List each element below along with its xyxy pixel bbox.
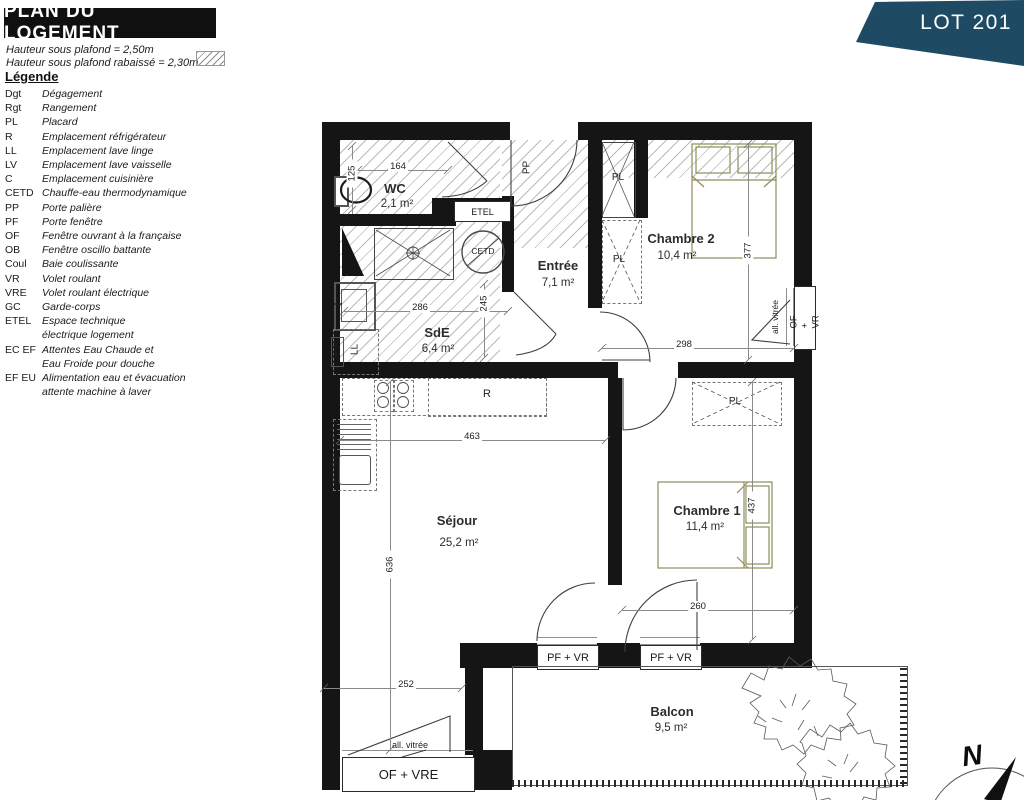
dim-sejour-height: 636 [385,551,396,579]
tag-pp: PP [522,150,533,186]
dim-kitchen-width: 463 [462,431,482,442]
allege-vitree-right: all. vitrée [770,294,780,340]
room-name-entree: Entrée [538,258,578,273]
tag-fridge: R [477,388,497,400]
tag-pl-closet: PL [606,172,630,183]
plan-linework [0,0,1024,800]
room-area-sejour: 25,2 m² [440,537,479,549]
room-area-wc: 2,1 m² [381,198,414,210]
room-area-entree: 7,1 m² [542,277,575,289]
dim-wc-width: 164 [388,161,408,172]
tree-scribble [822,754,858,778]
sejour-frenchdoor-arc [537,583,595,641]
burner-icon [378,383,389,394]
tag-washing-machine: LL [350,332,361,368]
tag-pl-bedroom1: PL [723,396,747,407]
shower-room-door-arc [516,334,556,355]
shower-drain-cross [406,246,420,260]
room-area-bedroom2: 10,4 m² [658,250,697,262]
dim-bedroom1-height: 437 [747,492,758,520]
burner-icon [378,397,389,408]
dim-sejour-width: 252 [396,679,416,690]
floor-plan-sheet: PLAN DU LOGEMENT Hauteur sous plafond = … [0,0,1024,800]
dimension-ticks [320,140,798,754]
dim-sde-width: 286 [410,302,430,313]
allege-vitree-bottom: all. vitrée [386,740,434,750]
dim-line [324,688,462,689]
burner-icon [398,397,409,408]
burner-icon [398,383,409,394]
tag-pl-bedroom2: PL [607,254,631,265]
room-area-balcon: 9,5 m² [655,722,688,734]
tree-scribble [742,657,856,754]
bed-pillow [696,147,730,173]
room-name-balcon: Balcon [650,704,693,719]
shower-room-door-leaf [514,292,556,334]
dim-line [602,348,794,349]
wc-door-leaf [448,142,487,181]
room-area-sde: 6,4 m² [422,343,455,355]
dim-line [622,610,794,611]
tree-scribble [797,723,895,800]
allege-arrow [402,750,426,757]
room-name-sejour: Séjour [437,513,477,528]
dim-sde-height: 245 [479,290,490,318]
bedroom1-door-arc [623,378,676,430]
bed-fold-bedroom2 [692,176,776,187]
room-name-wc: WC [384,181,406,196]
dim-wc-height: 125 [347,160,358,188]
tag-cetd: CETD [463,246,503,256]
room-name-sde: SdE [424,325,449,340]
room-name-bedroom2: Chambre 2 [647,231,714,246]
room-area-bedroom1: 11,4 m² [686,521,724,533]
dim-bedroom2-width: 298 [674,339,694,350]
compass-arrow [984,757,1016,800]
dim-bedroom1-width: 260 [688,601,708,612]
bed-pillow [746,527,769,564]
wc-door-arc [442,181,487,197]
compass-north-label: N [960,739,984,774]
room-name-bedroom1: Chambre 1 [673,503,740,518]
bedroom1-frenchdoor-arc [625,580,697,652]
bed-pillow [738,147,772,173]
bedroom2-door-arc [600,312,650,362]
dim-bedroom2-height: 377 [743,237,754,265]
tag-water-connections: EF EU [333,331,339,367]
